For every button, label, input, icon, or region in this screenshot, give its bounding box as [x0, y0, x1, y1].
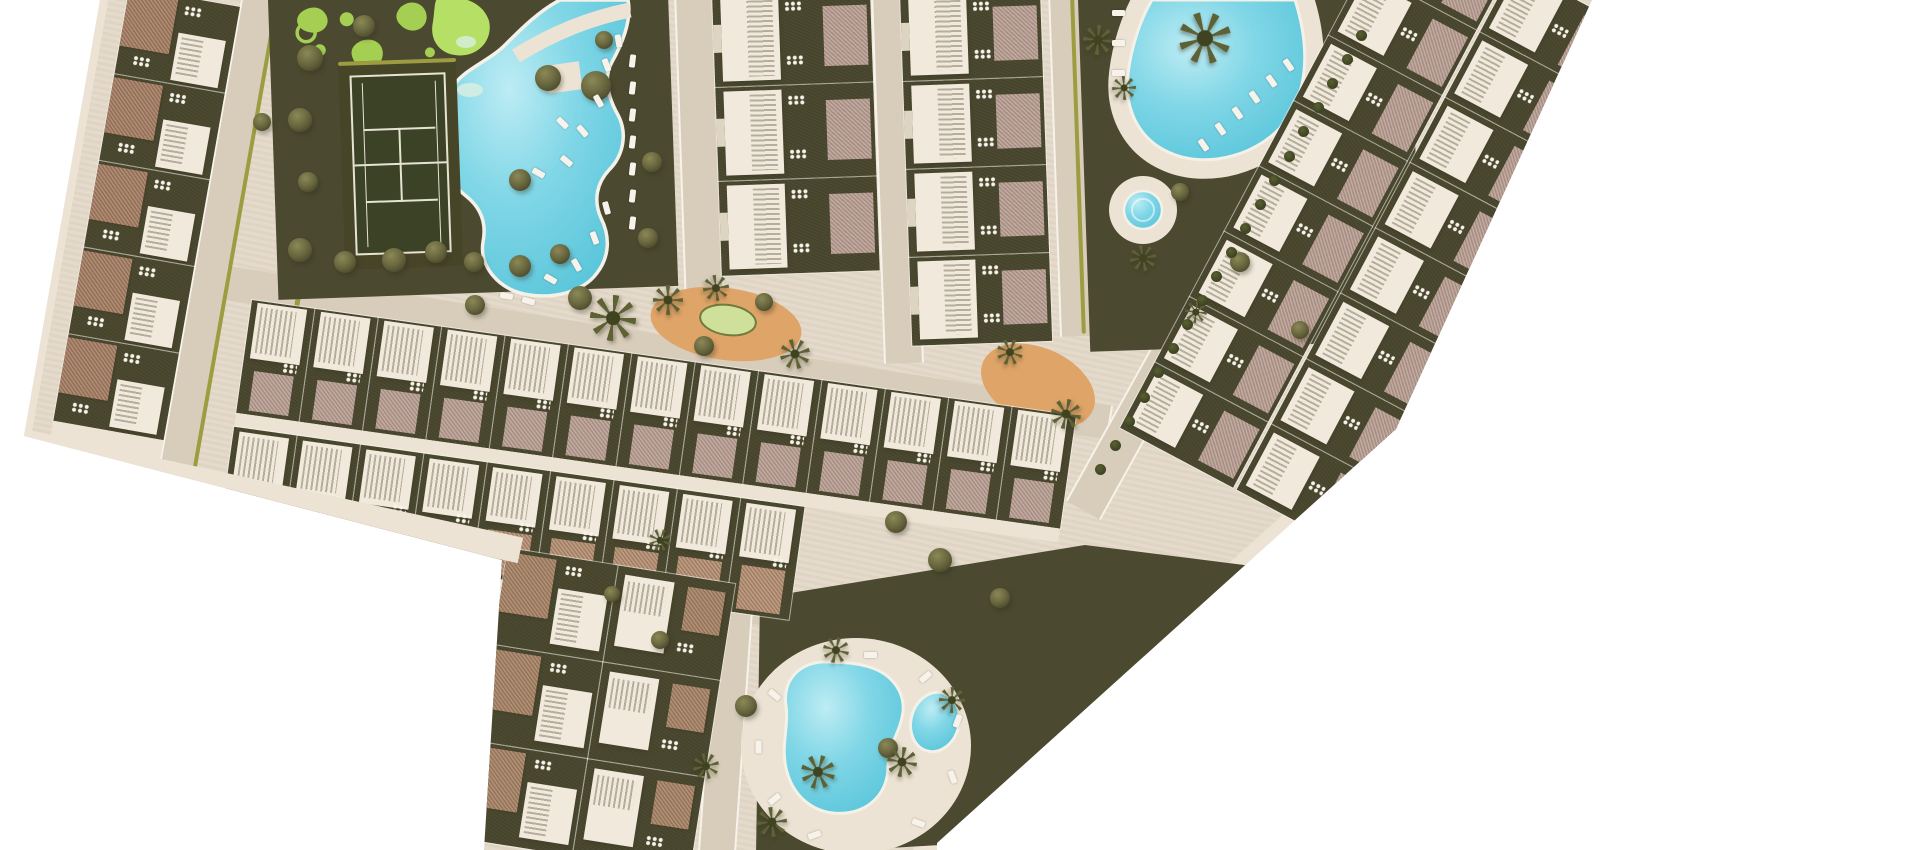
hedge-bush: [1095, 464, 1106, 475]
hedge-bush: [1182, 319, 1193, 330]
hedge-bush: [1284, 151, 1295, 162]
tree: [755, 293, 773, 311]
sun-lounger: [560, 155, 574, 168]
sun-lounger: [1112, 70, 1125, 76]
hedge-bush: [1269, 175, 1280, 186]
tree: [288, 238, 312, 262]
sun-lounger: [1265, 74, 1277, 88]
sun-lounger: [629, 135, 637, 149]
palm-tree: [590, 295, 636, 341]
tree: [509, 169, 531, 191]
sun-lounger: [531, 167, 545, 179]
tree: [928, 548, 952, 572]
tree: [735, 695, 757, 717]
sun-lounger: [1112, 40, 1125, 46]
sun-lounger: [629, 108, 637, 122]
hedge-bush: [1240, 223, 1251, 234]
tree: [464, 252, 484, 272]
hedge-bush: [1197, 295, 1208, 306]
hedge-bush: [1110, 440, 1121, 451]
sun-lounger: [571, 258, 583, 272]
palm-tree: [818, 632, 854, 668]
palm-tree: [1110, 74, 1138, 102]
hedge-bush: [1226, 247, 1237, 258]
tree: [425, 241, 447, 263]
palm-tree: [1126, 241, 1161, 276]
southwest-edge-sidewalk: [14, 428, 523, 563]
sun-lounger: [952, 714, 962, 728]
sun-lounger: [629, 81, 637, 95]
sun-lounger: [576, 124, 589, 138]
hedge-bush: [1327, 78, 1338, 89]
palm-tree: [751, 801, 792, 842]
palm-tree: [992, 334, 1028, 370]
sun-lounger: [919, 671, 933, 684]
palm-tree: [1050, 398, 1083, 431]
tree: [353, 15, 375, 37]
tree: [550, 244, 570, 264]
sun-lounger: [1231, 106, 1243, 120]
sun-lounger: [807, 830, 821, 840]
tree: [568, 286, 592, 310]
private-terrace: [229, 494, 279, 544]
sun-lounger: [768, 689, 782, 702]
hedge-bush: [1298, 126, 1309, 137]
tree: [638, 228, 658, 248]
tree: [1171, 183, 1189, 201]
hedge-bush: [1356, 30, 1367, 41]
sun-lounger: [521, 296, 535, 305]
sun-lounger: [602, 201, 611, 215]
sun-lounger: [629, 162, 637, 176]
sun-lounger: [543, 273, 557, 285]
palm-tree: [938, 686, 967, 715]
sun-lounger: [629, 216, 637, 230]
sun-lounger: [1197, 138, 1209, 152]
tree: [334, 251, 356, 273]
hedge-bush: [1313, 102, 1324, 113]
palm-tree: [647, 527, 674, 554]
sun-lounger: [614, 34, 622, 48]
tree: [595, 31, 613, 49]
sun-lounger: [911, 818, 925, 828]
tree: [604, 586, 620, 602]
sun-lounger: [768, 793, 782, 806]
sun-lounger: [1112, 10, 1125, 16]
hedge-bush: [1211, 271, 1222, 282]
sun-lounger: [500, 292, 514, 300]
palm-tree: [776, 335, 815, 374]
sun-lounger: [1282, 58, 1294, 72]
tree: [990, 588, 1010, 608]
site-plate: [0, 0, 1920, 850]
sun-lounger: [629, 189, 637, 203]
vegetation-layer: [0, 0, 1920, 850]
sun-lounger: [556, 116, 569, 129]
tree: [885, 511, 907, 533]
sun-lounger: [1248, 90, 1260, 104]
hedge-bush: [1168, 343, 1179, 354]
palm-tree: [647, 279, 689, 321]
tree: [642, 152, 662, 172]
tree: [297, 45, 323, 71]
sun-lounger: [601, 58, 611, 72]
sun-lounger: [947, 770, 957, 784]
hedge-bush: [1153, 367, 1164, 378]
tree: [651, 631, 669, 649]
sun-lounger: [1214, 122, 1226, 136]
tree: [253, 113, 271, 131]
tree: [288, 108, 312, 132]
tree: [509, 255, 531, 277]
sun-lounger: [756, 741, 762, 754]
palm-tree: [689, 749, 723, 783]
hedge-bush: [1124, 416, 1135, 427]
hedge-bush: [1342, 54, 1353, 65]
palm-tree: [1170, 3, 1240, 73]
sun-lounger: [589, 231, 599, 245]
masterplan-canvas: [0, 0, 1920, 850]
tree: [694, 336, 714, 356]
tree: [465, 295, 485, 315]
hedge-bush: [1139, 392, 1150, 403]
palm-tree: [700, 272, 732, 304]
tree: [298, 172, 318, 192]
tree: [382, 248, 406, 272]
tree: [1291, 321, 1309, 339]
hedge-bush: [1255, 199, 1266, 210]
palm-tree: [798, 752, 837, 791]
tree: [535, 65, 561, 91]
sun-lounger: [629, 54, 637, 68]
sun-lounger: [864, 652, 877, 658]
